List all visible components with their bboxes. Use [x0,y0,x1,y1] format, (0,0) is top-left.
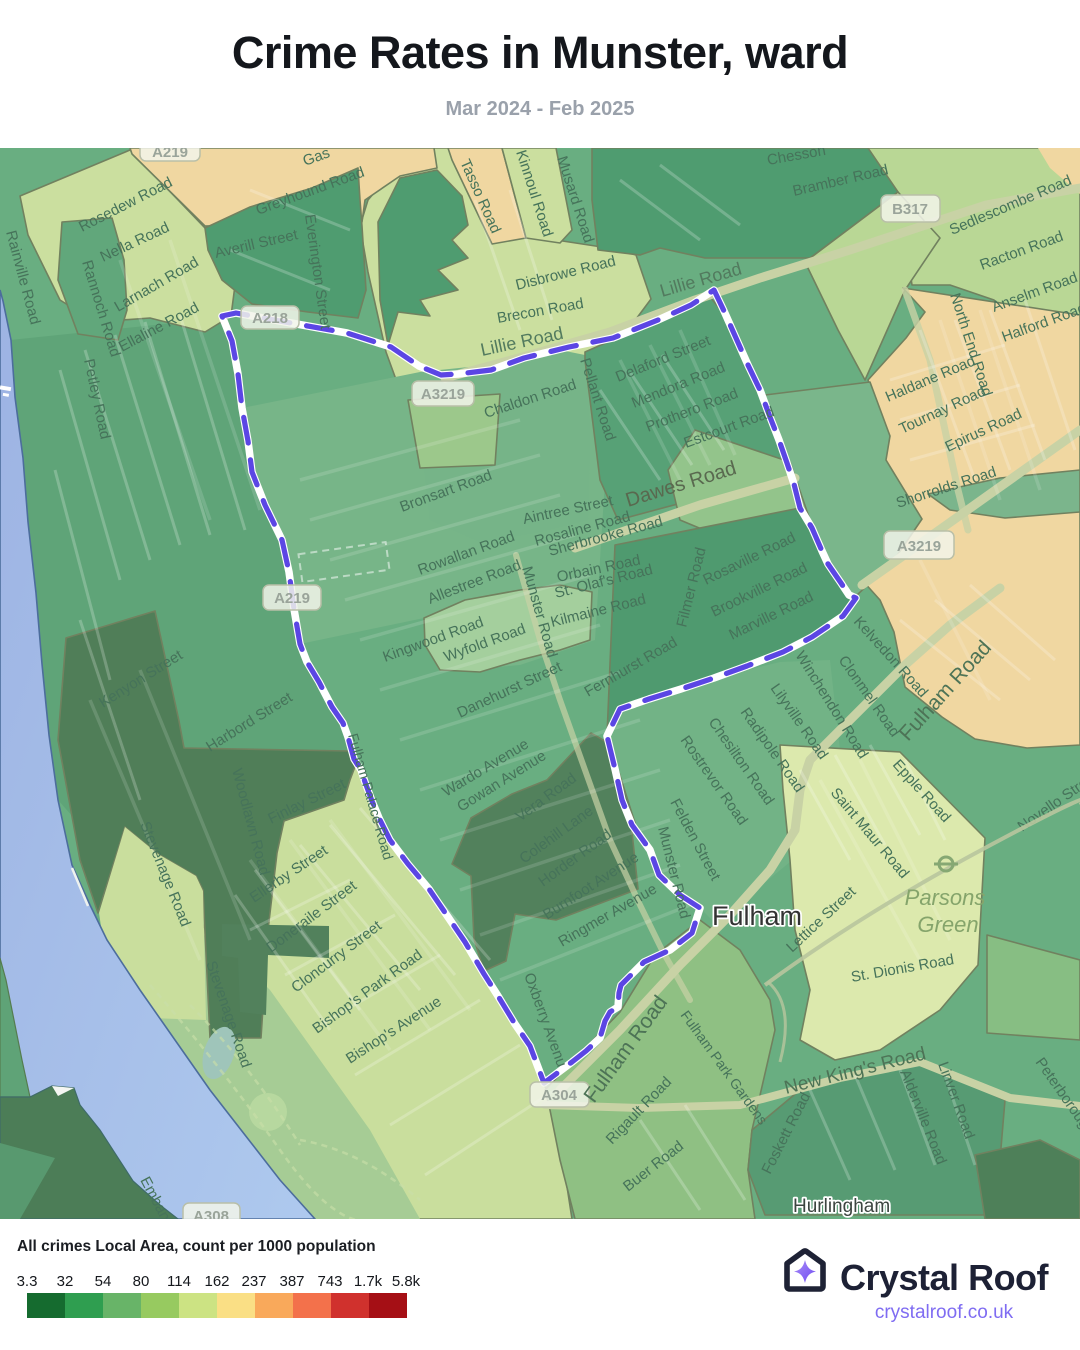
svg-text:A219: A219 [152,148,188,161]
svg-text:Fulham: Fulham [712,901,802,931]
svg-text:A219: A219 [274,590,310,607]
svg-text:A308: A308 [193,1208,229,1219]
svg-text:A3219: A3219 [421,386,465,403]
svg-text:Hurlingham: Hurlingham [793,1196,890,1217]
svg-text:A218: A218 [252,310,288,327]
svg-text:A3219: A3219 [897,538,941,555]
svg-text:B317: B317 [892,201,928,218]
svg-text:Parsons: Parsons [905,885,986,910]
svg-text:Green: Green [917,912,978,937]
svg-text:A304: A304 [541,1087,578,1104]
